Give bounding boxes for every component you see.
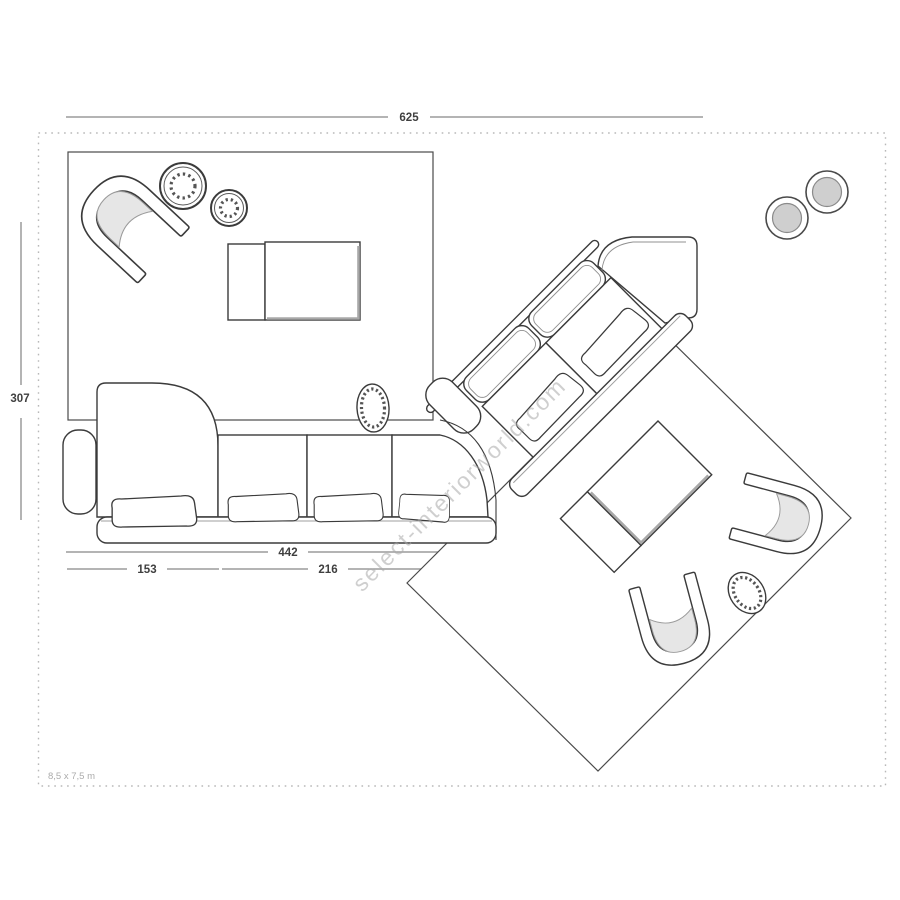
dimension-seat-section: 216 — [222, 564, 435, 576]
dimension-seat-section-label: 216 — [318, 564, 337, 576]
bottom-sofa-armrest — [63, 430, 96, 514]
bottom-sofa-pillow-chaise — [112, 496, 197, 527]
room-size-label: 8,5 x 7,5 m — [48, 771, 95, 782]
dimension-sofa-total-label: 442 — [278, 547, 297, 559]
dimension-chaise-section: 153 — [67, 564, 219, 576]
dimension-left-depth-label: 307 — [10, 393, 29, 405]
round-pouf-2 — [806, 171, 848, 213]
coffee-table-1-main-top — [265, 242, 360, 320]
bottom-sofa-pillow-1 — [228, 493, 299, 521]
dimension-chaise-section-label: 153 — [137, 564, 156, 576]
bottom-sofa-pillow-2 — [314, 493, 383, 521]
coffee-table-1 — [228, 242, 360, 320]
dimension-total-width: 625 — [66, 112, 703, 124]
round-side-table-large — [160, 163, 206, 209]
floor-plan: 625 307 442 153 216 8,5 x 7,5 m — [0, 0, 900, 900]
dimension-total-width-label: 625 — [399, 112, 419, 124]
coffee-table-1-small-top — [228, 244, 265, 320]
round-side-table-small — [211, 190, 247, 226]
dimension-left-depth: 307 — [10, 222, 29, 520]
round-pouf-1 — [766, 197, 808, 239]
